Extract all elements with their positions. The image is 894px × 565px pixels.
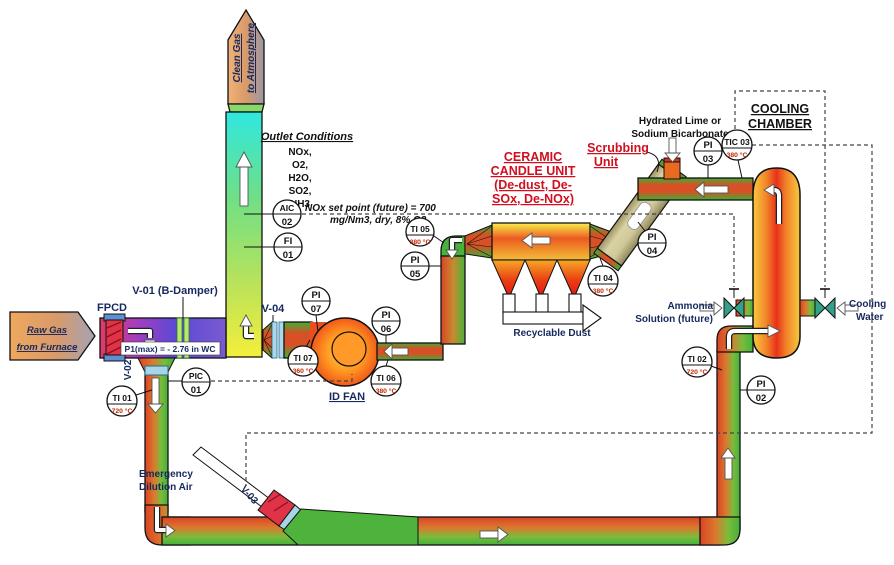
svg-text:Cooling: Cooling: [849, 299, 886, 310]
nox-setpoint-1: NOx set point (future) = 700: [305, 203, 436, 214]
svg-text:AIC: AIC: [280, 203, 295, 213]
svg-text:05: 05: [410, 269, 421, 280]
instrument-pi05: PI 05: [401, 252, 429, 280]
svg-text:TI 06: TI 06: [376, 373, 396, 383]
ammonia-label: Ammonia Solution (future): [635, 301, 713, 325]
v04-damper: [272, 322, 284, 358]
scrubbing-unit-label: Scrubbing Unit: [587, 141, 649, 169]
instrument-ti06: TI 06 380 °C: [371, 366, 401, 396]
v01-label: V-01 (B-Damper): [132, 285, 218, 297]
id-fan: [310, 318, 379, 386]
diagram-canvas: Clean Gas to Atmosphere Outlet Condition…: [0, 0, 894, 560]
svg-text:PI: PI: [648, 232, 657, 243]
svg-text:H2O,: H2O,: [288, 173, 312, 184]
process-flow-diagram: Clean Gas to Atmosphere Outlet Condition…: [0, 0, 894, 560]
instrument-tic03: TIC 03 380 °C: [722, 130, 752, 160]
id-fan-label: ID FAN: [329, 391, 365, 403]
svg-text:04: 04: [647, 246, 658, 257]
fpcd-label: FPCD: [97, 302, 127, 314]
ammonia-valve-assembly: [724, 289, 753, 318]
svg-text:360 °C: 360 °C: [293, 367, 314, 375]
cooling-water-valve-assembly: [800, 289, 835, 318]
recyclable-dust-label: Recyclable Dust: [513, 328, 591, 339]
bottom-right-elbow: [700, 517, 740, 545]
fan-hub: [332, 332, 366, 366]
svg-text:380 °C: 380 °C: [593, 287, 614, 295]
instrument-aic02: AIC 02: [273, 200, 301, 228]
svg-text:PIC: PIC: [189, 371, 203, 381]
svg-text:TI 02: TI 02: [687, 354, 707, 364]
cooling-water-valve: [815, 298, 825, 318]
svg-text:Hydrated Lime or: Hydrated Lime or: [639, 116, 721, 127]
outlet-conditions-title: Outlet Conditions: [261, 131, 353, 143]
instrument-fi01: FI 01: [274, 233, 302, 261]
instrument-ti02: TI 02 720 °C: [682, 347, 712, 377]
cooling-chamber-label: COOLING CHAMBER: [748, 102, 812, 131]
instrument-pic01: PIC 01: [182, 368, 210, 396]
svg-text:01: 01: [283, 250, 294, 261]
svg-text:Unit: Unit: [594, 155, 619, 169]
v02-label: V-02: [123, 359, 134, 380]
instrument-ti05: TI 05 380 °C: [406, 218, 434, 246]
clean-gas-label-2: to Atmosphere: [246, 22, 257, 93]
svg-text:TI 04: TI 04: [593, 273, 613, 283]
svg-text:PI: PI: [411, 255, 420, 266]
svg-text:CANDLE UNIT: CANDLE UNIT: [491, 164, 576, 178]
svg-text:Dilution Air: Dilution Air: [139, 482, 193, 493]
svg-text:NOx,: NOx,: [288, 147, 312, 158]
svg-text:720 °C: 720 °C: [687, 368, 708, 376]
svg-text:380 °C: 380 °C: [376, 387, 397, 395]
v02-damper: [145, 366, 168, 375]
ceramic-candle-label: CERAMIC CANDLE UNIT (De-dust, De- SOx, D…: [491, 150, 576, 206]
svg-text:SOx, De-NOx): SOx, De-NOx): [492, 192, 574, 206]
svg-text:CHAMBER: CHAMBER: [748, 117, 812, 131]
svg-text:07: 07: [311, 304, 322, 315]
clean-gas-label-1: Clean Gas: [232, 33, 243, 82]
instrument-pi02: PI 02: [747, 376, 775, 404]
svg-text:FI: FI: [284, 236, 292, 247]
instrument-ti04: TI 04 380 °C: [588, 266, 618, 296]
svg-text:03: 03: [703, 154, 714, 165]
instrument-ti01: TI 01 720 °C: [107, 386, 137, 416]
svg-text:P1(max) = - 2.76 in WC: P1(max) = - 2.76 in WC: [125, 344, 216, 354]
svg-text:Solution (future): Solution (future): [635, 314, 713, 325]
svg-text:PI: PI: [757, 379, 766, 390]
p1max-box: P1(max) = - 2.76 in WC: [121, 342, 220, 355]
svg-text:Emergency: Emergency: [139, 469, 193, 480]
candle-left-transition: [465, 225, 492, 258]
svg-text:CERAMIC: CERAMIC: [504, 150, 562, 164]
hydrated-lime-label: Hydrated Lime or Sodium Bicarbonate: [631, 116, 729, 140]
svg-text:PI: PI: [382, 310, 391, 321]
svg-text:720 °C: 720 °C: [112, 407, 133, 415]
svg-text:PI: PI: [704, 140, 713, 151]
svg-text:02: 02: [756, 393, 767, 404]
svg-text:06: 06: [381, 324, 392, 335]
svg-text:Water: Water: [856, 312, 884, 323]
svg-text:TI 07: TI 07: [293, 353, 313, 363]
candle-downcomer: [441, 256, 465, 344]
candle-hoppers: [492, 260, 590, 298]
stack-top-transition: [228, 104, 264, 112]
svg-text:380 °C: 380 °C: [727, 151, 748, 159]
instrument-pi07: PI 07: [302, 287, 330, 315]
instrument-ti07: TI 07 360 °C: [288, 346, 318, 376]
v04-label: V-04: [262, 303, 286, 315]
raw-gas-label-1: Raw Gas: [27, 325, 67, 336]
svg-text:Ammonia: Ammonia: [667, 301, 713, 312]
svg-text:01: 01: [191, 385, 202, 396]
svg-text:O2,: O2,: [292, 160, 308, 171]
svg-text:Scrubbing: Scrubbing: [587, 141, 649, 155]
svg-text:COOLING: COOLING: [751, 102, 809, 116]
right-riser-pipe: [717, 350, 740, 530]
v03-merge: [283, 509, 418, 545]
instrument-pi06: PI 06: [372, 307, 400, 335]
svg-text:02: 02: [282, 217, 293, 228]
svg-text:380 °C: 380 °C: [410, 238, 431, 246]
raw-gas-label-2: from Furnace: [17, 342, 78, 353]
svg-text:TI 05: TI 05: [410, 224, 430, 234]
svg-text:SO2,: SO2,: [289, 186, 312, 197]
instrument-pi03: PI 03: [694, 137, 722, 165]
svg-text:(De-dust, De-: (De-dust, De-: [494, 178, 572, 192]
svg-text:TIC 03: TIC 03: [724, 137, 750, 147]
bottom-pipe: [162, 517, 720, 545]
svg-text:TI 01: TI 01: [112, 393, 132, 403]
ammonia-valve: [724, 298, 734, 318]
instrument-pi04: PI 04: [638, 229, 666, 257]
dust-discharge-pipes: [503, 294, 601, 331]
svg-text:PI: PI: [312, 290, 321, 301]
